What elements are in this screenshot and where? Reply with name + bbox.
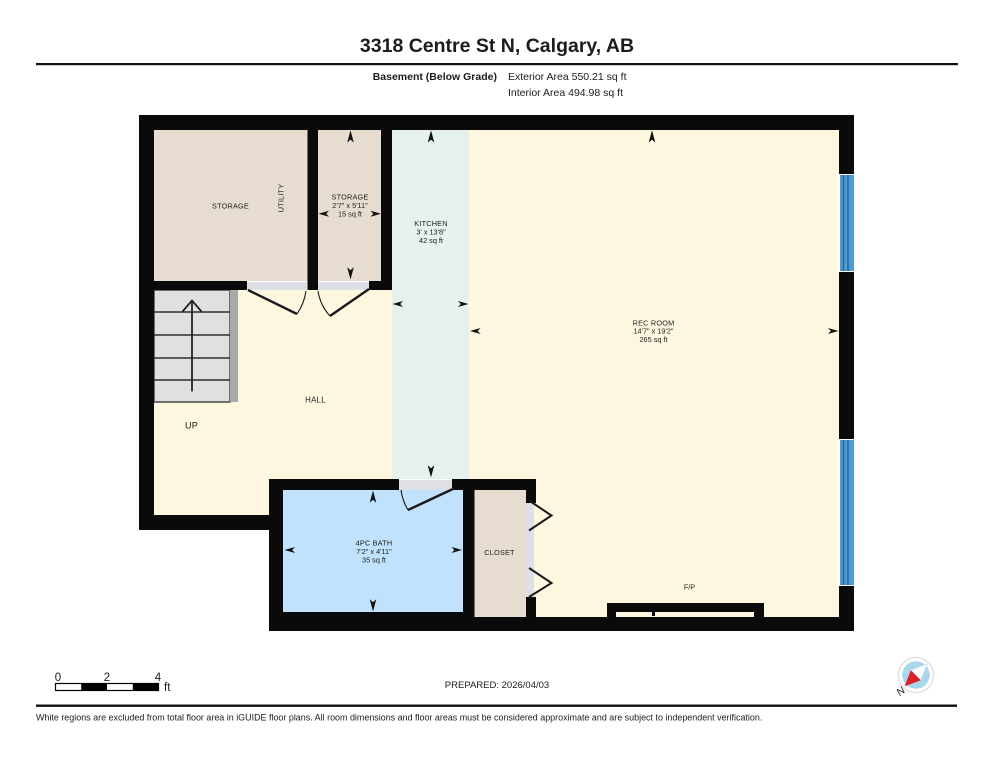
svg-text:HALL: HALL — [305, 396, 326, 405]
svg-text:ft: ft — [164, 682, 171, 694]
svg-text:Interior Area 494.98 sq ft: Interior Area 494.98 sq ft — [508, 87, 623, 99]
svg-text:42 sq ft: 42 sq ft — [419, 236, 443, 245]
svg-text:0: 0 — [55, 672, 61, 684]
svg-text:PREPARED: 2026/04/03: PREPARED: 2026/04/03 — [445, 680, 549, 691]
svg-text:White regions are excluded fro: White regions are excluded from total fl… — [36, 713, 762, 723]
svg-text:UTILITY: UTILITY — [277, 184, 286, 213]
svg-text:F/P: F/P — [684, 583, 695, 592]
svg-text:STORAGE: STORAGE — [212, 202, 249, 211]
svg-text:Basement (Below Grade): Basement (Below Grade) — [373, 71, 497, 83]
svg-text:UP: UP — [185, 421, 198, 431]
svg-text:Exterior Area 550.21 sq ft: Exterior Area 550.21 sq ft — [508, 71, 627, 83]
svg-text:15 sq ft: 15 sq ft — [338, 209, 362, 218]
svg-text:265 sq ft: 265 sq ft — [640, 335, 668, 344]
svg-text:CLOSET: CLOSET — [484, 548, 515, 557]
svg-text:2: 2 — [104, 672, 110, 684]
svg-text:3318 Centre St N, Calgary, AB: 3318 Centre St N, Calgary, AB — [360, 35, 634, 57]
svg-text:35 sq ft: 35 sq ft — [362, 555, 386, 564]
svg-text:4: 4 — [155, 672, 162, 684]
